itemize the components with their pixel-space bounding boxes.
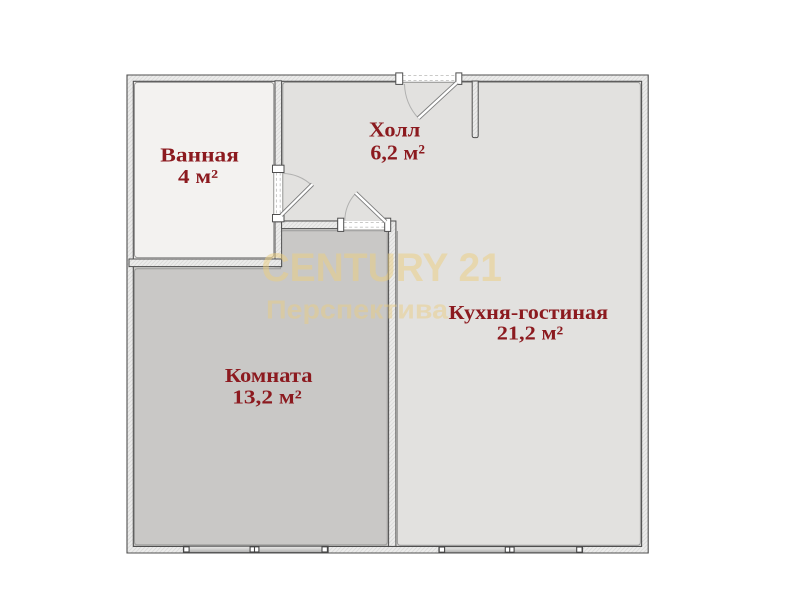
svg-text:13,2 м²: 13,2 м² xyxy=(232,387,302,409)
svg-text:Перспектива: Перспектива xyxy=(266,297,449,325)
svg-text:Ванная: Ванная xyxy=(160,145,239,167)
svg-text:6,2 м²: 6,2 м² xyxy=(370,141,425,165)
svg-text:CENTURY 21: CENTURY 21 xyxy=(261,246,502,290)
svg-text:21,2 м²: 21,2 м² xyxy=(497,323,564,345)
svg-text:Кухня-гостиная: Кухня-гостиная xyxy=(449,302,609,324)
svg-text:Комната: Комната xyxy=(225,365,313,387)
svg-text:Холл: Холл xyxy=(369,118,420,142)
svg-text:4 м²: 4 м² xyxy=(178,166,218,188)
